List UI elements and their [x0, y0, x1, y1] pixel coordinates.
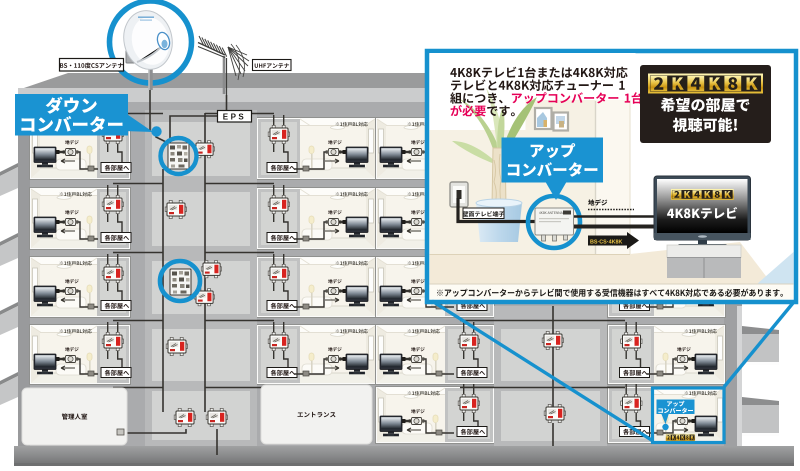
svg-text:BS·CS·4K8K: BS·CS·4K8K: [590, 240, 622, 246]
svg-text:4K8K ANTENNA: 4K8K ANTENNA: [539, 211, 564, 215]
svg-text:EPS: EPS: [223, 113, 247, 122]
